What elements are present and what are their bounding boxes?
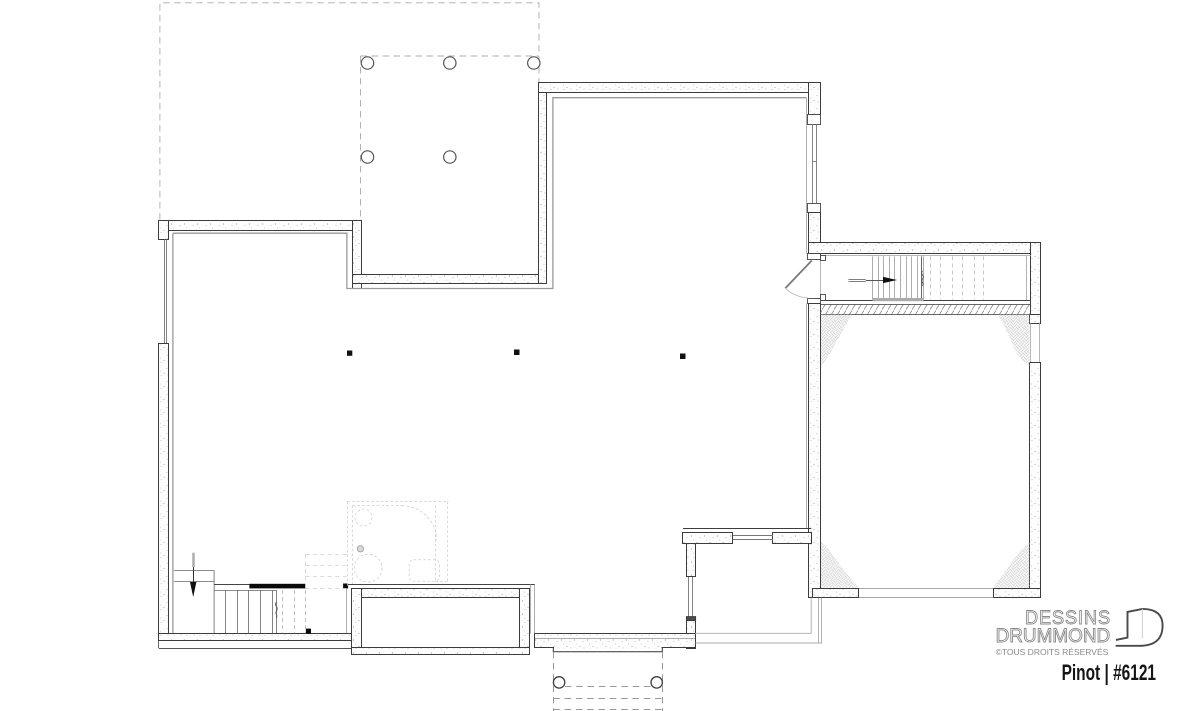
svg-text:©TOUS DROITS RÉSERVÉS: ©TOUS DROITS RÉSERVÉS xyxy=(996,647,1109,657)
svg-text:Pinot | #6121: Pinot | #6121 xyxy=(1062,660,1156,685)
svg-text:DRUMMOND: DRUMMOND xyxy=(996,626,1111,647)
